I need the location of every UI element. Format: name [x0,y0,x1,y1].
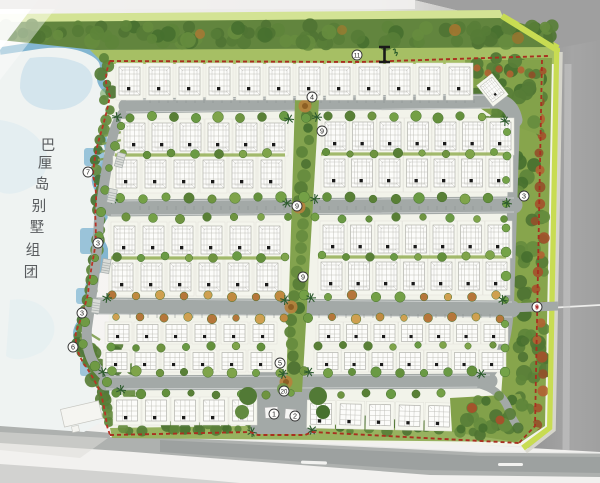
svg-text:20: 20 [281,389,288,395]
svg-text:9: 9 [295,201,299,210]
svg-text:9: 9 [320,126,324,135]
svg-text:2: 2 [293,411,297,420]
svg-text:厘: 厘 [38,156,53,172]
svg-text:3: 3 [522,191,526,200]
svg-text:组: 组 [26,242,41,259]
svg-text:团: 团 [24,265,39,281]
svg-text:3: 3 [80,308,84,317]
svg-text:7: 7 [86,167,90,176]
svg-text:11: 11 [354,52,361,59]
svg-text:5: 5 [278,358,282,367]
svg-text:巴: 巴 [41,138,56,154]
svg-text:4: 4 [310,92,314,101]
svg-text:1: 1 [272,409,276,418]
svg-text:墅: 墅 [30,219,45,236]
svg-text:3: 3 [96,238,100,247]
svg-text:6: 6 [71,342,75,351]
svg-text:岛: 岛 [35,176,50,193]
svg-text:别: 别 [32,198,47,215]
svg-text:9: 9 [301,272,305,281]
